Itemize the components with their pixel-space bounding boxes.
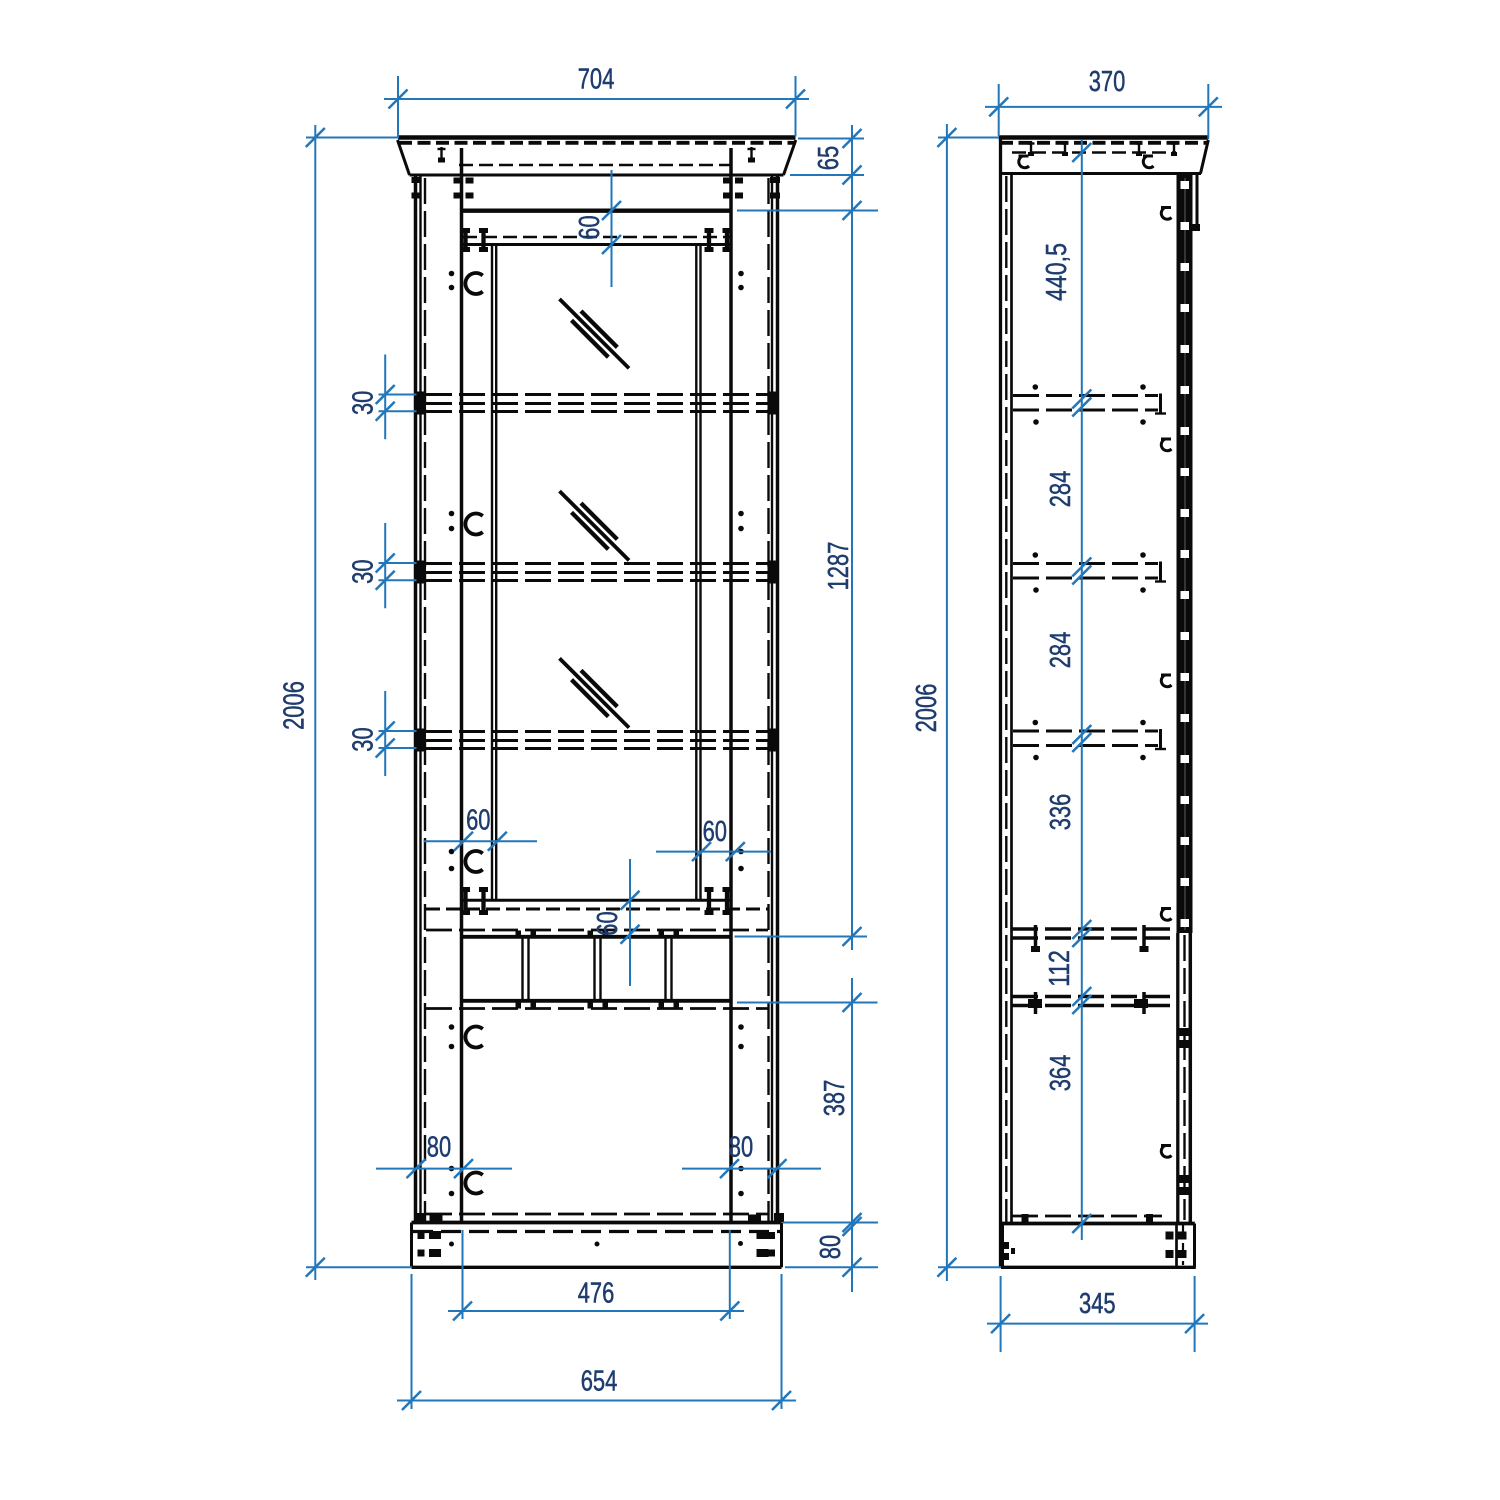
svg-text:654: 654 [581, 1366, 618, 1398]
svg-text:345: 345 [1079, 1288, 1116, 1320]
svg-text:2006: 2006 [911, 684, 943, 733]
svg-text:60: 60 [466, 805, 490, 837]
svg-text:704: 704 [578, 64, 615, 96]
svg-text:336: 336 [1045, 794, 1077, 831]
svg-text:2006: 2006 [279, 681, 311, 730]
svg-text:370: 370 [1089, 66, 1126, 98]
svg-text:30: 30 [348, 391, 380, 415]
svg-text:80: 80 [427, 1132, 451, 1164]
svg-text:60: 60 [574, 215, 606, 239]
svg-text:1287: 1287 [823, 542, 855, 591]
svg-text:60: 60 [592, 911, 624, 935]
svg-text:112: 112 [1044, 950, 1076, 987]
svg-text:284: 284 [1045, 471, 1077, 508]
svg-text:80: 80 [729, 1132, 753, 1164]
svg-text:387: 387 [819, 1080, 851, 1117]
svg-text:30: 30 [348, 727, 380, 751]
svg-text:364: 364 [1045, 1055, 1077, 1092]
svg-text:80: 80 [815, 1235, 847, 1259]
svg-text:476: 476 [578, 1278, 615, 1310]
svg-text:65: 65 [813, 146, 845, 170]
svg-text:284: 284 [1045, 632, 1077, 669]
svg-text:440,5: 440,5 [1041, 243, 1073, 301]
svg-text:30: 30 [348, 559, 380, 583]
svg-text:60: 60 [703, 816, 727, 848]
